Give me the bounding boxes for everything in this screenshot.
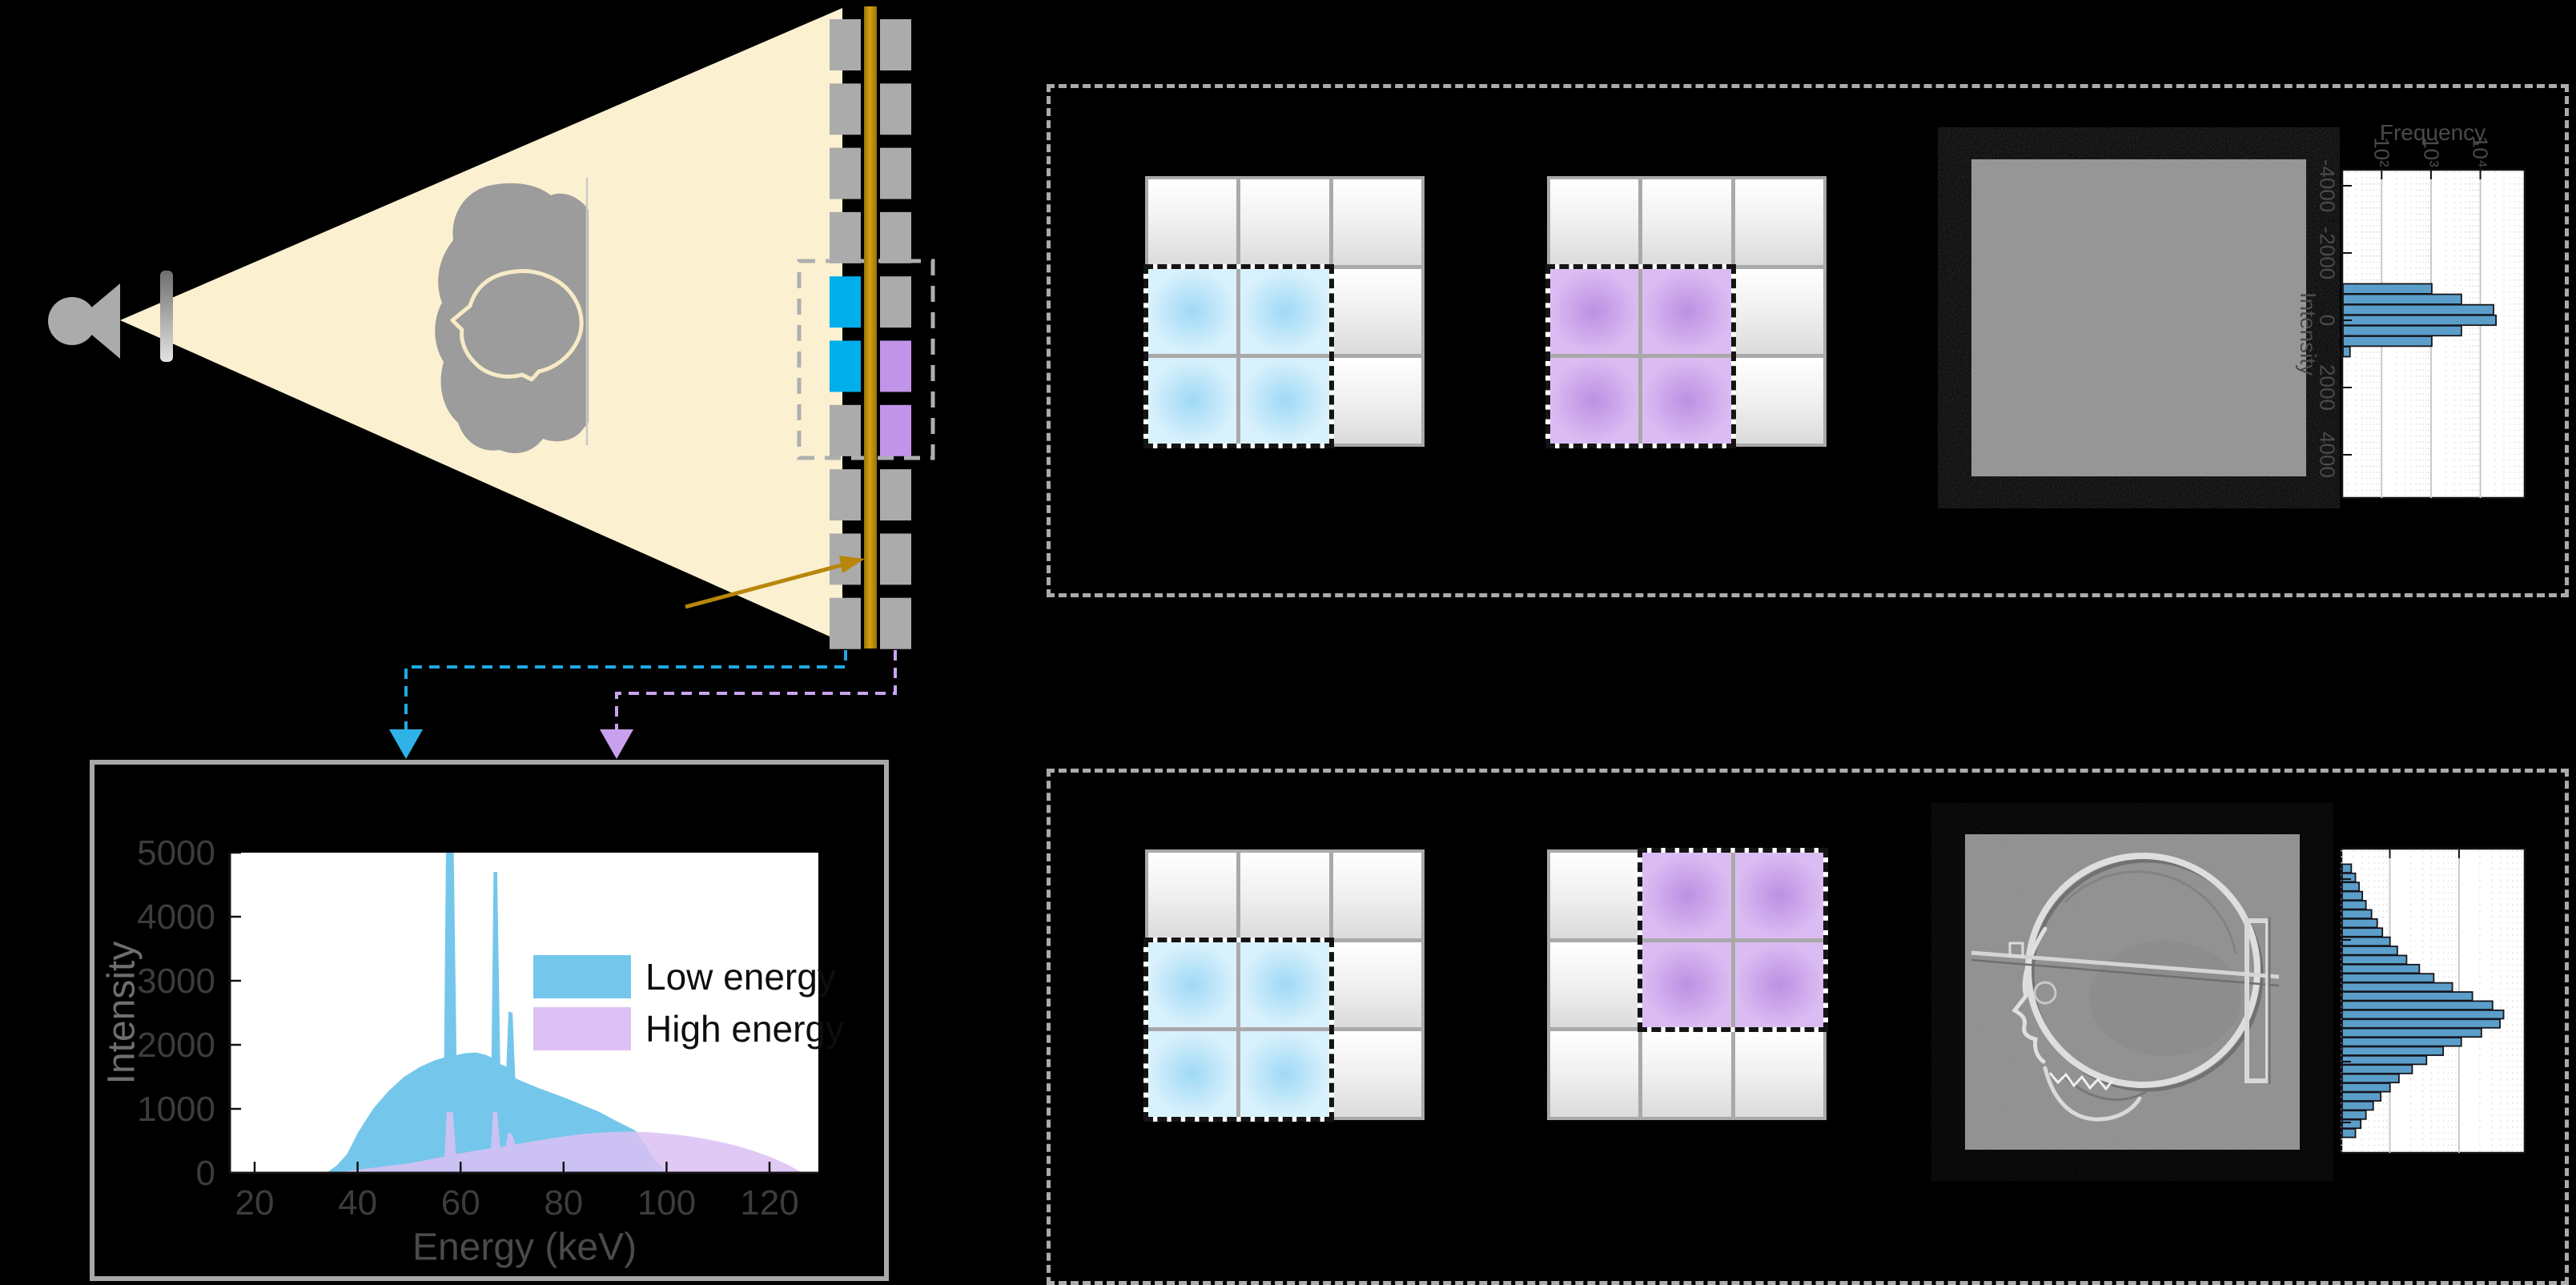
legend-label-high-energy: High energy: [645, 1007, 844, 1050]
detector-pixel-bottom-layer: [880, 212, 911, 263]
detector-pixel-top-layer: [830, 469, 861, 520]
histogram-bar: [2342, 965, 2419, 974]
histogram-bar: [2343, 347, 2350, 356]
figure-canvas: 01000200030004000500020406080100120 Inte…: [0, 0, 2576, 1285]
histogram-bar: [2343, 305, 2494, 315]
histogram-bar: [2342, 873, 2356, 882]
histogram-bar: [2342, 1110, 2366, 1119]
skull-difference-histogram: [2306, 833, 2576, 1169]
x-tick-label: 120: [740, 1183, 798, 1223]
flat-difference-histogram: [2306, 112, 2576, 520]
histogram-bar: [2342, 1010, 2504, 1019]
detector-pixel-bottom-layer: [880, 19, 911, 70]
detector-pixel-top-layer: [830, 148, 861, 199]
collimator-icon: [160, 271, 173, 362]
histogram-bar: [2342, 892, 2362, 901]
detector-pixel-bottom-layer: [880, 405, 911, 456]
legend-label-low-energy: Low energy: [645, 955, 836, 998]
xray-source-icon: [48, 283, 120, 359]
histogram-bar: [2342, 864, 2351, 873]
detector-pixel-bottom-layer: [880, 83, 911, 135]
histogram-bar: [2342, 974, 2433, 982]
histogram-bar: [2342, 983, 2453, 992]
frequency-tick-label: 10⁴: [2468, 136, 2493, 168]
histogram-bar: [2342, 1083, 2390, 1092]
histogram-bar: [2342, 1019, 2500, 1028]
histogram-bar: [2342, 882, 2359, 891]
histogram-bar: [2343, 336, 2432, 346]
x-tick-label: 80: [544, 1183, 583, 1223]
high-energy-arrowhead: [600, 729, 633, 759]
histogram-bar: [2343, 315, 2496, 325]
grid-cell: [1550, 942, 1638, 1028]
y-tick-label: 3000: [137, 962, 215, 1001]
histogram-bar: [2342, 938, 2390, 946]
detector-pixel-bottom-layer: [880, 598, 911, 649]
histogram-bar: [2342, 1102, 2373, 1110]
y-tick-label: 1000: [137, 1090, 215, 1129]
histogram-bar: [2342, 1065, 2412, 1074]
detector-pixel-top-layer: [830, 405, 861, 456]
grid-cell: [1735, 269, 1823, 355]
x-tick-label: 20: [235, 1183, 275, 1223]
histogram-bar: [2342, 1129, 2356, 1138]
low-energy-arrowhead: [389, 729, 423, 759]
grid-cell: [1642, 1031, 1730, 1117]
head-phantom: [435, 178, 589, 453]
x-tick-label: 60: [441, 1183, 480, 1223]
grid-cell: [1333, 358, 1421, 444]
histogram-bar: [2342, 1120, 2361, 1129]
frequency-tick-label: 10³: [2419, 137, 2444, 167]
detector-pixel-bottom-layer: [880, 148, 911, 199]
grid-cell: [1148, 179, 1236, 265]
histogram-bar: [2342, 910, 2372, 918]
skull-lateral-sketch: [1965, 834, 2300, 1150]
grid-cell: [1240, 179, 1328, 265]
legend-swatch-low-energy: [533, 955, 631, 998]
histogram-bar: [2342, 946, 2397, 955]
detector-pixel-top-layer: [830, 341, 861, 392]
histogram-bar: [2342, 1046, 2443, 1055]
histogram-bar: [2343, 283, 2432, 293]
histogram-bar: [2342, 919, 2377, 928]
grid-cell: [1333, 179, 1421, 265]
selected-block-outline: [1143, 938, 1334, 1122]
x-tick-label: 100: [637, 1183, 696, 1223]
intensity-tick-label: -4000: [2315, 159, 2340, 213]
intensity-tick-label: 4000: [2315, 432, 2340, 478]
grid-cell: [1550, 179, 1638, 265]
grid-cell: [1333, 853, 1421, 938]
histogram-bar: [2342, 1056, 2426, 1065]
histogram-bar: [2342, 1038, 2461, 1046]
grid-cell: [1333, 1031, 1421, 1117]
histogram-bar: [2343, 295, 2461, 304]
grid-cell: [1642, 179, 1730, 265]
grid-cell: [1550, 1031, 1638, 1117]
histogram-bar: [2342, 928, 2382, 937]
histogram-bar: [2342, 1001, 2493, 1010]
skull-difference-image: [1965, 834, 2300, 1150]
grid-cell: [1333, 942, 1421, 1028]
spectrum-x-axis-label: Energy (keV): [412, 1226, 637, 1270]
grid-cell: [1735, 358, 1823, 444]
histogram-bar: [2342, 1029, 2482, 1038]
intensity-tick-label: 2000: [2315, 364, 2340, 411]
x-tick-label: 40: [338, 1183, 377, 1223]
histogram-bar: [2342, 1074, 2399, 1083]
detector-pixel-top-layer: [830, 19, 861, 70]
histogram-bar: [2342, 1092, 2381, 1101]
intensity-tick-label: 0: [2315, 315, 2340, 326]
histogram-intensity-label: Intensity: [2295, 292, 2321, 375]
histogram-bar: [2342, 901, 2366, 910]
y-tick-label: 5000: [137, 833, 215, 873]
detector-pixel-bottom-layer: [880, 276, 911, 327]
grid-cell: [1148, 853, 1236, 938]
histogram-bar: [2342, 955, 2406, 964]
grid-cell: [1550, 853, 1638, 938]
legend-swatch-high-energy: [533, 1007, 631, 1050]
y-tick-label: 2000: [137, 1026, 215, 1065]
frequency-tick-label: 10²: [2369, 137, 2394, 167]
y-tick-label: 4000: [137, 897, 215, 937]
selected-block-outline: [1143, 264, 1334, 448]
grid-cell: [1240, 853, 1328, 938]
selected-block-outline: [1638, 848, 1828, 1032]
detector-pixel-top-layer: [830, 276, 861, 327]
detector-pixel-bottom-layer: [880, 469, 911, 520]
detector-pixel-top-layer: [830, 598, 861, 649]
detector-pixel-top-layer: [830, 83, 861, 135]
spectrum-y-axis-label: Intensity: [100, 942, 144, 1085]
detector-pixel-top-layer: [830, 212, 861, 263]
detector-pixel-bottom-layer: [880, 533, 911, 584]
intensity-tick-label: -2000: [2315, 227, 2340, 280]
histogram-bar: [2343, 326, 2461, 335]
detector-pixel-bottom-layer: [880, 341, 911, 392]
grid-cell: [1735, 1031, 1823, 1117]
grid-cell: [1333, 269, 1421, 355]
flat-difference-image: [1971, 159, 2306, 476]
selected-block-outline: [1545, 264, 1736, 448]
grid-cell: [1735, 179, 1823, 265]
detector-filter-strip: [864, 6, 877, 649]
histogram-bar: [2342, 992, 2473, 1001]
y-tick-label: 0: [196, 1154, 215, 1193]
